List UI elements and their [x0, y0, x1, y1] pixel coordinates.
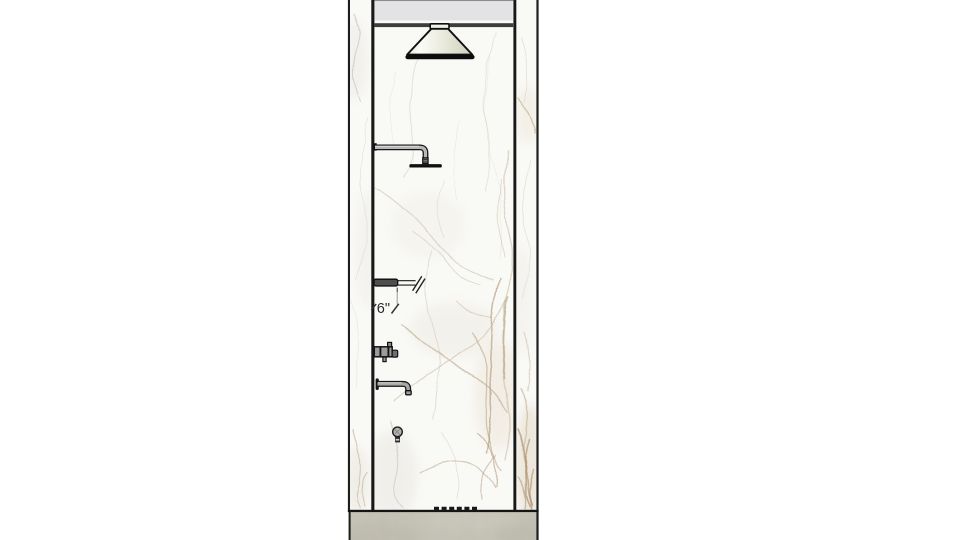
svg-text:6": 6"	[377, 301, 390, 317]
